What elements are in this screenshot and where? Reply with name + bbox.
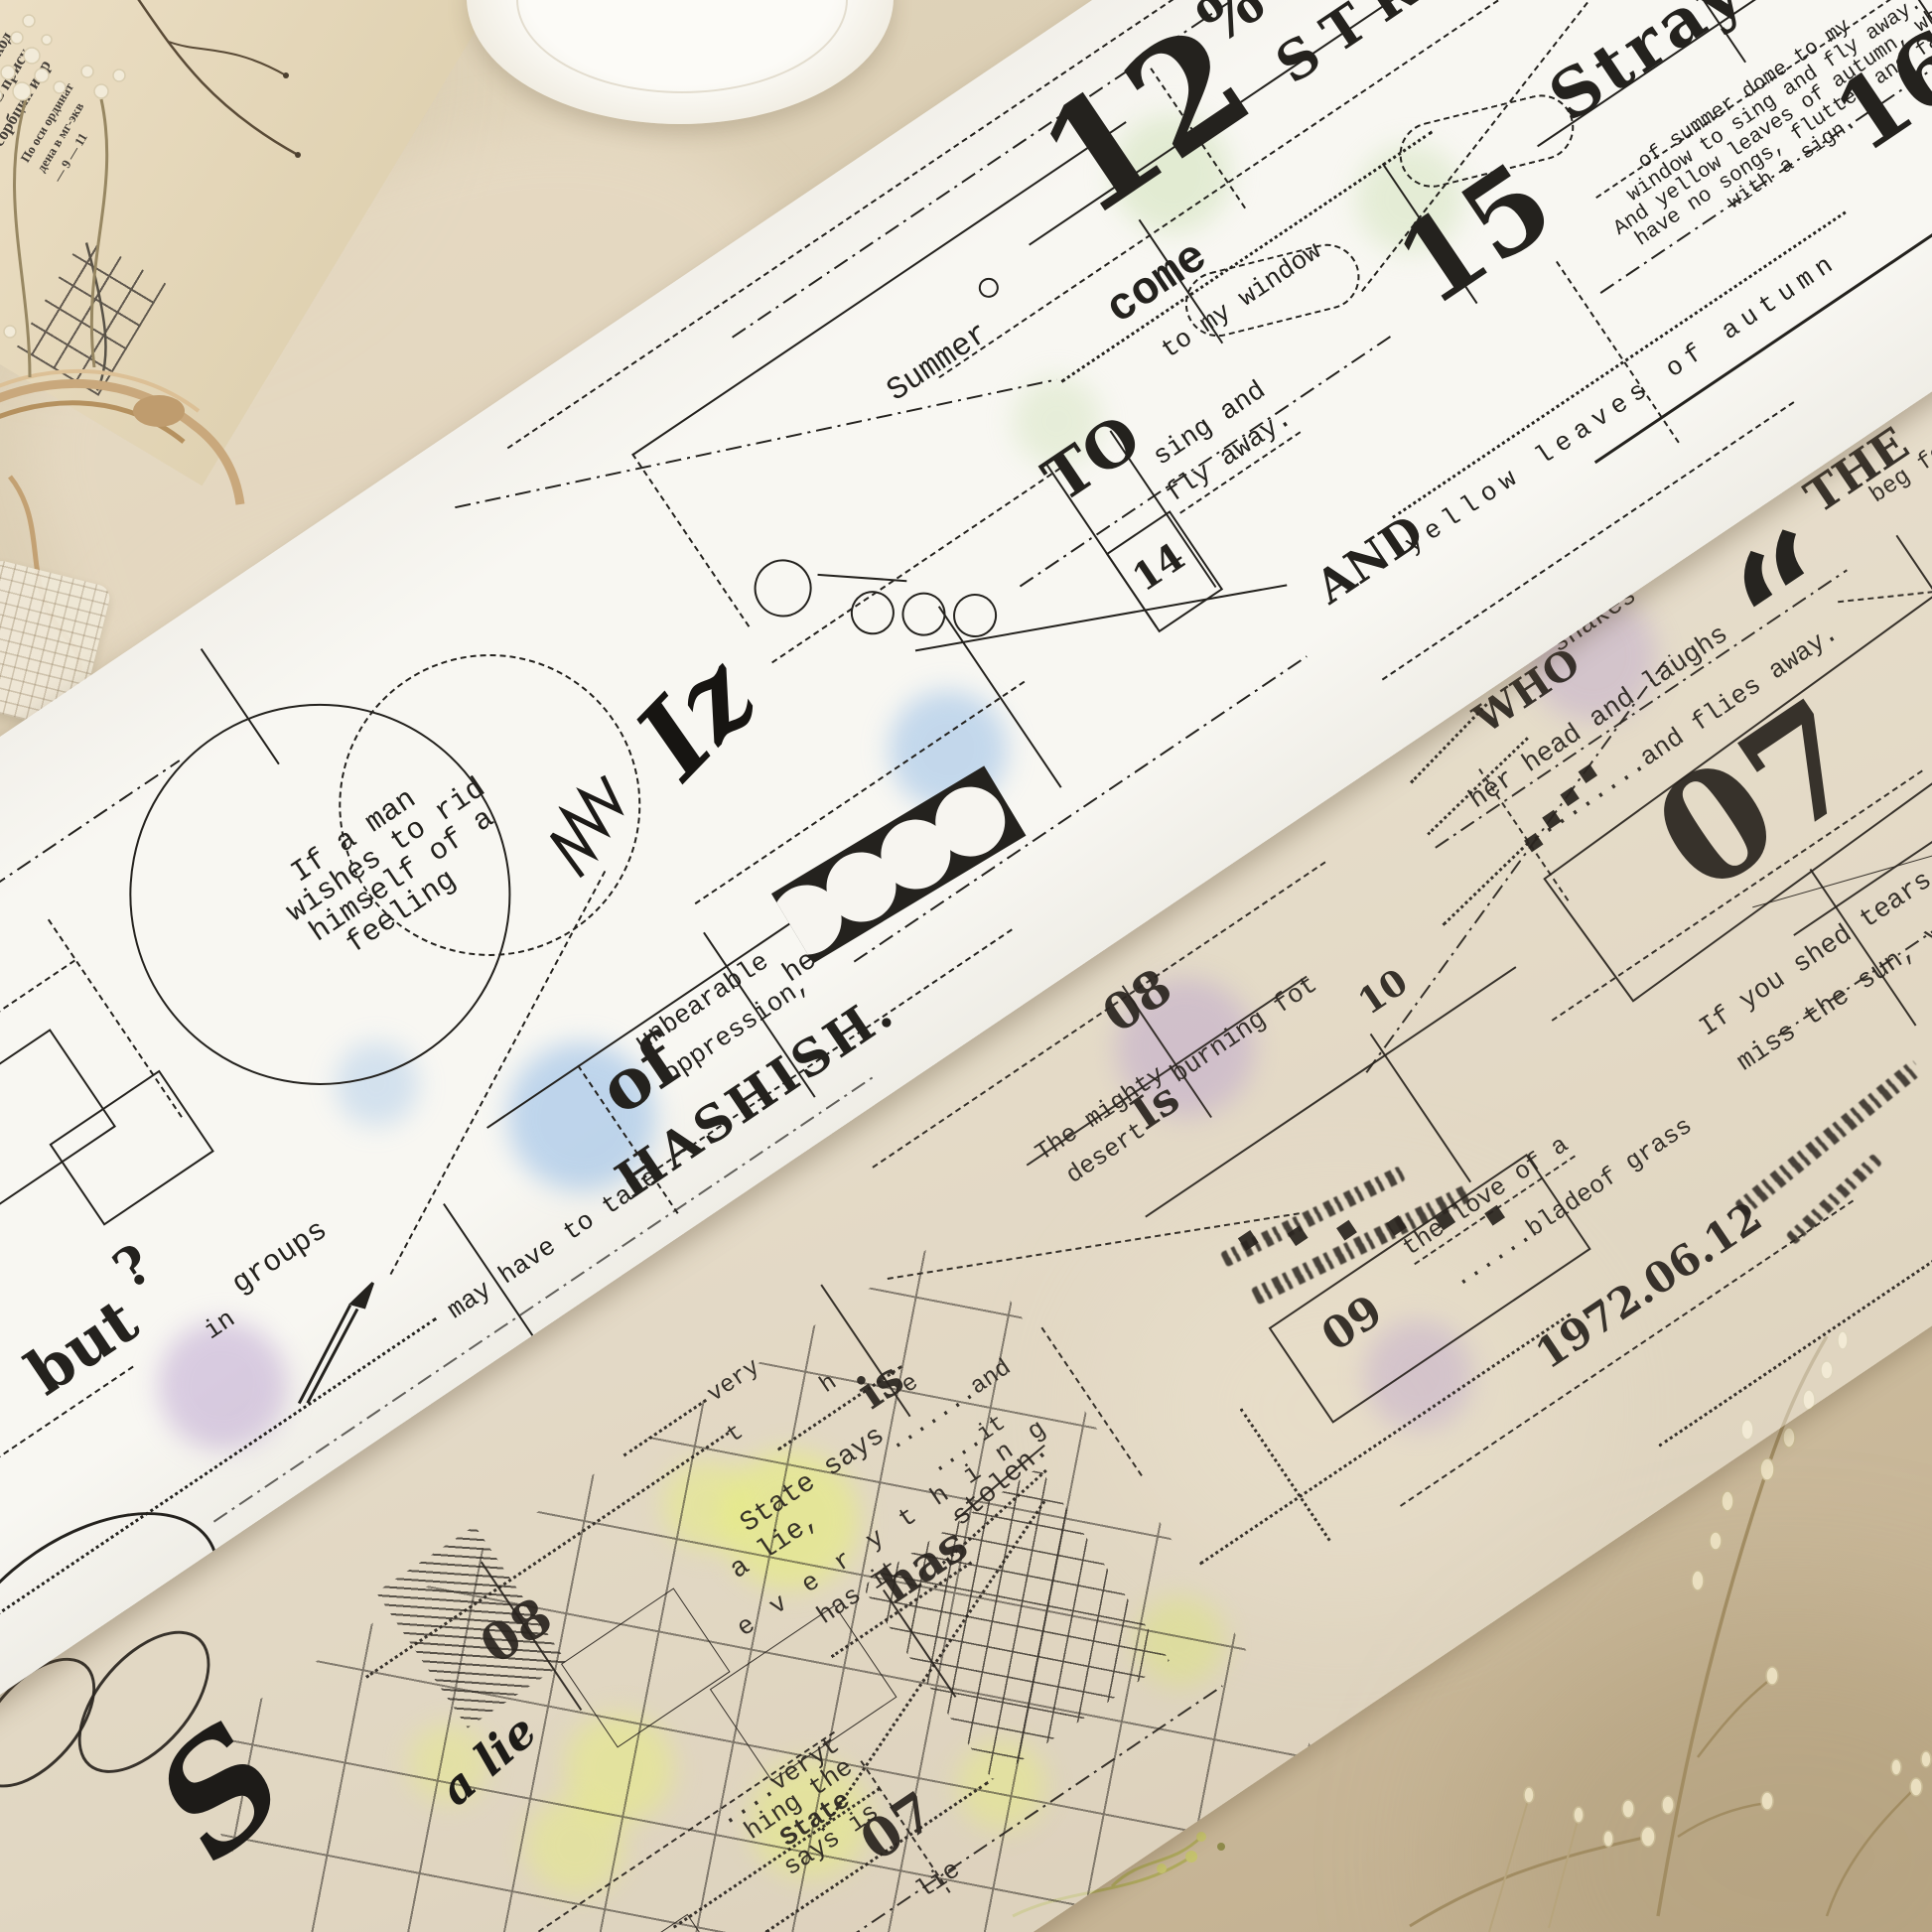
stamp-word-groups: groups	[227, 1215, 333, 1300]
print-line	[1838, 557, 1932, 603]
print-line	[1240, 1408, 1331, 1541]
print-line	[1370, 1034, 1471, 1182]
stamp-number-10: 10	[1352, 963, 1414, 1021]
stamp-word-but: but	[17, 1289, 148, 1405]
circle-mark-icon	[842, 583, 902, 643]
dried-flowers-top-left	[0, 0, 328, 397]
print-line	[817, 574, 906, 582]
circle-mark-icon	[894, 584, 954, 644]
photo-scene: Рис. 3. Выход дена в прису сорбции из р …	[0, 0, 1932, 1932]
circle-mark-icon	[743, 548, 823, 628]
distressed-print-bar	[1220, 1166, 1406, 1267]
handwritten-script-iz: Iz	[620, 640, 773, 794]
print-line	[455, 378, 1057, 508]
dotted-leader	[1443, 841, 1530, 926]
quote-mark: “	[1717, 518, 1872, 684]
stamp-word-stray-clipped: STRA	[1267, 0, 1486, 91]
print-line	[631, 454, 750, 627]
filmstrip-mark	[771, 765, 1027, 963]
stamp-word-and: AND	[1308, 507, 1430, 611]
period-circle-icon	[975, 274, 1003, 302]
pen-nib-icon	[268, 1268, 405, 1412]
stamp-summer: Summer	[882, 318, 994, 408]
